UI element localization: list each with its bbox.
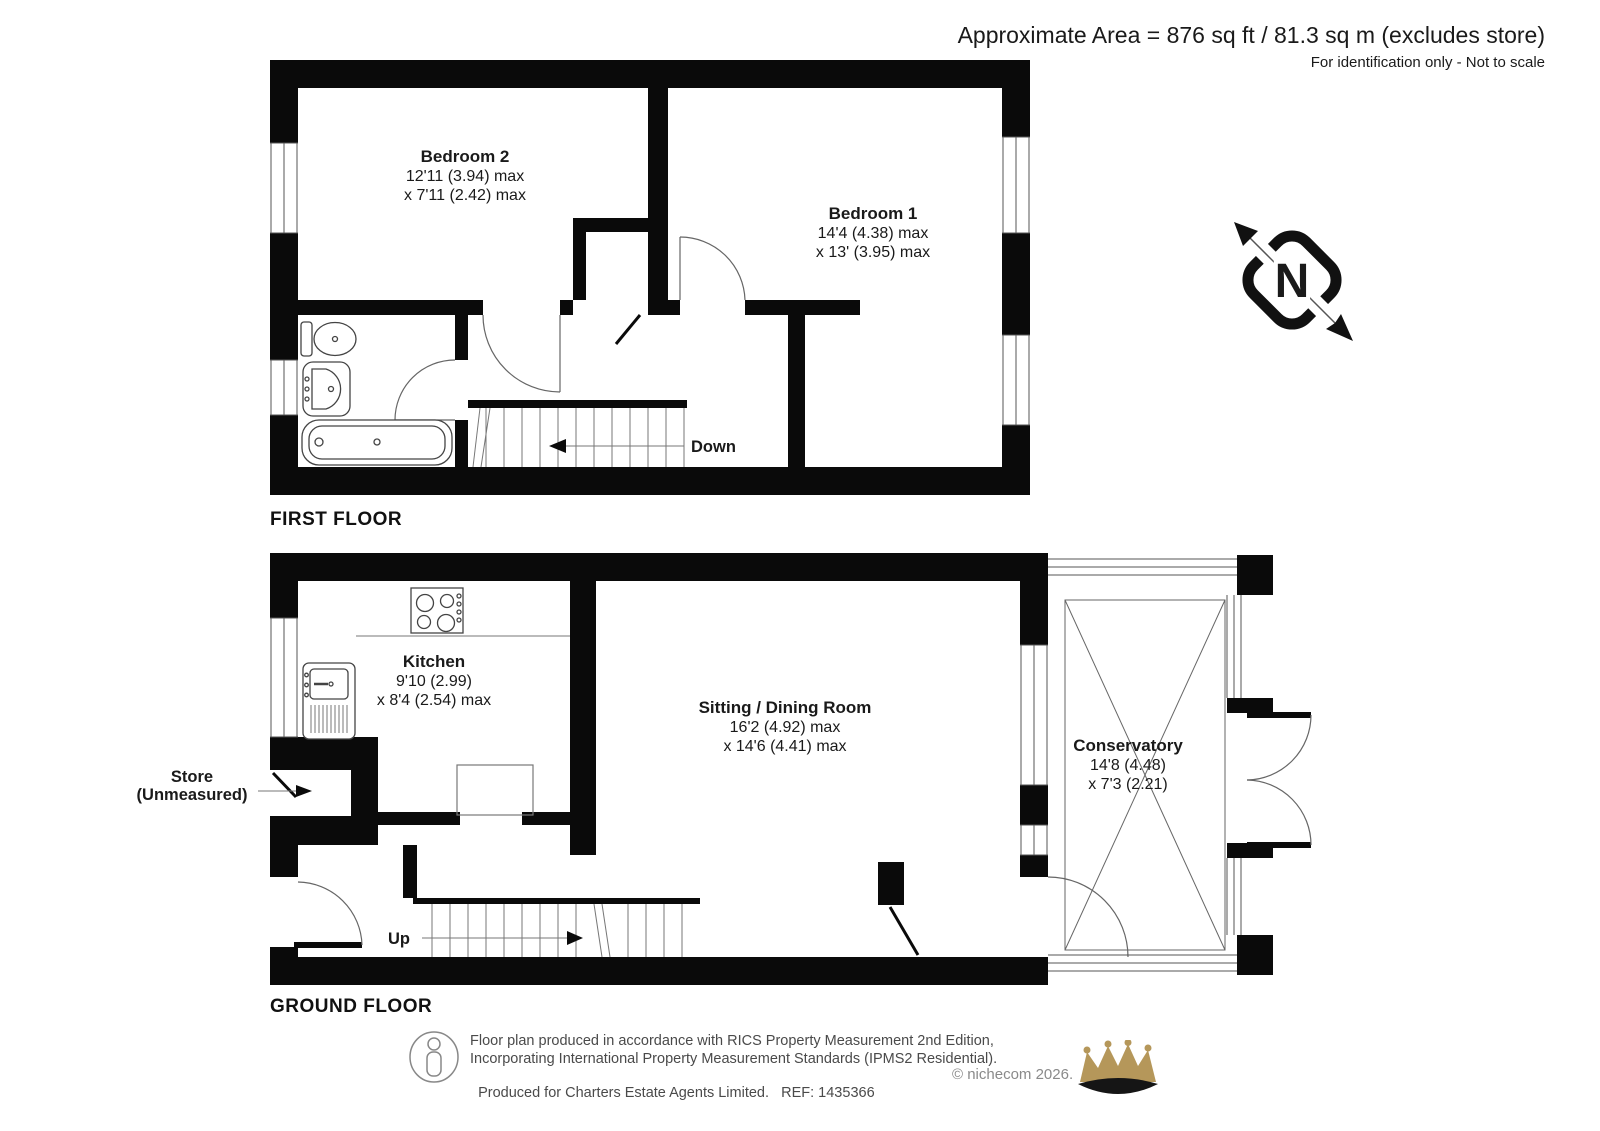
understairs-door-icon xyxy=(890,907,918,955)
not-to-scale-note: For identification only - Not to scale xyxy=(1311,54,1545,71)
footer-produced: Produced for Charters Estate Agents Limi… xyxy=(478,1085,769,1101)
kitchen-name: Kitchen xyxy=(403,652,465,671)
arrow-right-icon xyxy=(296,785,312,797)
window-icon xyxy=(270,143,298,233)
bedroom1-dim2: x 13' (3.95) max xyxy=(816,244,930,261)
ground-floor-walls xyxy=(270,553,1048,985)
sink-icon xyxy=(303,362,350,416)
window-icon xyxy=(1002,335,1030,425)
store-label-line2: (Unmeasured) xyxy=(137,786,248,804)
window-icon xyxy=(270,618,298,737)
toilet-icon xyxy=(301,322,356,356)
ground-floor-stairs xyxy=(413,898,700,957)
bedroom2-door-icon xyxy=(483,315,560,392)
copyright-text: © nichecom 2026. xyxy=(952,1066,1073,1083)
cupboard-door-icon xyxy=(616,315,640,344)
conservatory-roof-icon xyxy=(1065,600,1225,950)
bathtub-icon xyxy=(302,420,452,465)
store-label-line1: Store xyxy=(171,768,213,786)
stairs-up-label: Up xyxy=(388,930,410,948)
conservatory-door-icon xyxy=(1048,877,1128,957)
window-icon xyxy=(270,360,298,415)
sitting-dining-dim2: x 14'6 (4.41) max xyxy=(723,738,846,755)
footer-ref: REF: 1435366 xyxy=(781,1085,875,1101)
kitchen-dim1: 9'10 (2.99) xyxy=(396,673,472,690)
window-icon xyxy=(1002,137,1030,233)
conservatory-dim1: 14'8 (4.48) xyxy=(1090,757,1166,774)
person-scale-icon xyxy=(408,1030,462,1086)
crown-gold-shape xyxy=(1080,1044,1156,1082)
arrow-right-icon xyxy=(567,931,583,945)
ground-floor-title: GROUND FLOOR xyxy=(270,996,432,1018)
first-floor-doors xyxy=(395,237,745,420)
conservatory-dim2: x 7'3 (2.21) xyxy=(1088,776,1168,793)
footer-line2: Incorporating International Property Mea… xyxy=(470,1051,997,1067)
footer-line1: Floor plan produced in accordance with R… xyxy=(470,1033,994,1049)
window-icon xyxy=(1020,825,1048,855)
kitchen-sink-icon xyxy=(303,663,355,739)
footer-line3: Produced for Charters Estate Agents Limi… xyxy=(470,1069,875,1101)
bathroom-door-icon xyxy=(395,360,455,420)
first-floor-title: FIRST FLOOR xyxy=(270,509,402,531)
sitting-dining-name: Sitting / Dining Room xyxy=(699,698,872,717)
conservatory-structure xyxy=(1048,555,1311,975)
sitting-dining-dim1: 16'2 (4.92) max xyxy=(730,719,841,736)
first-floor-plan: Bedroom 2 12'11 (3.94) max x 7'11 (2.42)… xyxy=(270,60,1030,495)
bedroom2-dim1: 12'11 (3.94) max xyxy=(406,168,524,185)
ground-floor-plan: Kitchen 9'10 (2.99) x 8'4 (2.54) max Sit… xyxy=(120,545,1370,985)
entrance-door-leaf xyxy=(294,942,362,948)
bathroom-fixtures xyxy=(301,322,452,465)
bedroom1-name: Bedroom 1 xyxy=(829,204,918,223)
bedroom1-door-icon xyxy=(680,237,745,300)
entrance-door-icon xyxy=(298,882,362,945)
kitchen-unit xyxy=(457,765,533,815)
stairs-down-label: Down xyxy=(691,438,736,456)
first-floor-stairs xyxy=(468,400,687,467)
bedroom2-dim2: x 7'11 (2.42) max xyxy=(404,187,526,204)
french-doors-icon xyxy=(1247,712,1311,848)
approximate-area-text: Approximate Area = 876 sq ft / 81.3 sq m… xyxy=(958,22,1545,49)
hob-icon xyxy=(411,588,463,633)
bedroom1-dim1: 14'4 (4.38) max xyxy=(818,225,929,242)
window-icon xyxy=(1020,645,1048,785)
bedroom2-name: Bedroom 2 xyxy=(421,147,510,166)
kitchen-dim2: x 8'4 (2.54) max xyxy=(377,692,491,709)
compass-north-icon: N xyxy=(1222,210,1362,350)
crown-logo-icon xyxy=(1072,1040,1164,1106)
compass-n-label: N xyxy=(1275,255,1310,308)
store-door-icon xyxy=(273,773,296,797)
conservatory-name: Conservatory xyxy=(1073,736,1183,755)
